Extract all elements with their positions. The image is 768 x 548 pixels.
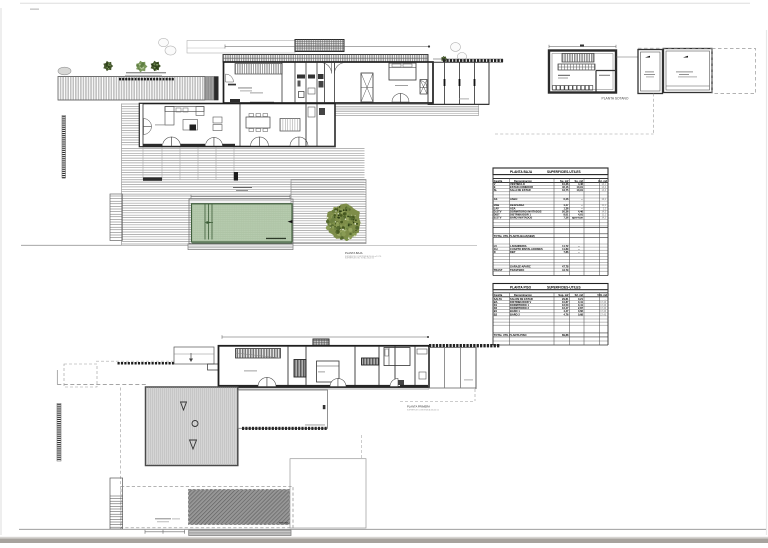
- svg-text:Sup. m2: Sup. m2: [558, 293, 569, 297]
- svg-text:S2. m2: S2. m2: [575, 293, 584, 297]
- svg-text:14,3: 14,3: [602, 210, 607, 213]
- svg-text:ASEO: ASEO: [510, 197, 517, 201]
- svg-text:6,46: 6,46: [563, 197, 569, 201]
- svg-text:PLANTA BAJA: PLANTA BAJA: [510, 170, 533, 174]
- svg-text:13,1: 13,1: [602, 199, 607, 201]
- svg-text:7,36: 7,36: [563, 216, 569, 220]
- svg-text:--: --: [581, 198, 583, 201]
- svg-text:Denominacion: Denominacion: [514, 293, 532, 297]
- svg-text:VOL m3: VOL m3: [597, 293, 607, 297]
- svg-text:PLANTA BAJA: PLANTA BAJA: [345, 251, 363, 255]
- svg-text:Casilla: Casilla: [494, 293, 503, 297]
- svg-text:14,2: 14,2: [602, 217, 607, 220]
- svg-text:PISCINA: PISCINA: [279, 522, 288, 525]
- svg-text:11,1: 11,1: [602, 215, 607, 217]
- svg-text:AS: AS: [494, 197, 498, 201]
- svg-text:TOTAL UTIL PLANTA BAJA(SEM): TOTAL UTIL PLANTA BAJA(SEM): [494, 234, 535, 238]
- svg-text:PLANTA PISO: PLANTA PISO: [510, 285, 532, 289]
- svg-text:SUPERFICIES-UTILES: SUPERFICIES-UTILES: [547, 285, 581, 289]
- svg-text:B.STV: B.STV: [494, 216, 502, 220]
- svg-text:SUPERFICIES-UTILES: SUPERFICIES-UTILES: [547, 170, 581, 174]
- svg-text:11,1: 11,1: [602, 205, 607, 207]
- svg-text:--: --: [578, 251, 580, 254]
- svg-text:SUPERFICIE CONSTRUIDA 180,00 m: SUPERFICIE CONSTRUIDA 180,00 m2: [407, 409, 439, 412]
- svg-text:PLANTA SOTANO: PLANTA SOTANO: [602, 97, 629, 101]
- svg-text:PLANTA PRIMERA: PLANTA PRIMERA: [407, 404, 430, 408]
- svg-text:SUPERFICIE UTIL TOTAL 245,0 m2: SUPERFICIE UTIL TOTAL 245,0 m2: [345, 257, 374, 260]
- svg-text:apre-tcm: apre-tcm: [572, 216, 584, 220]
